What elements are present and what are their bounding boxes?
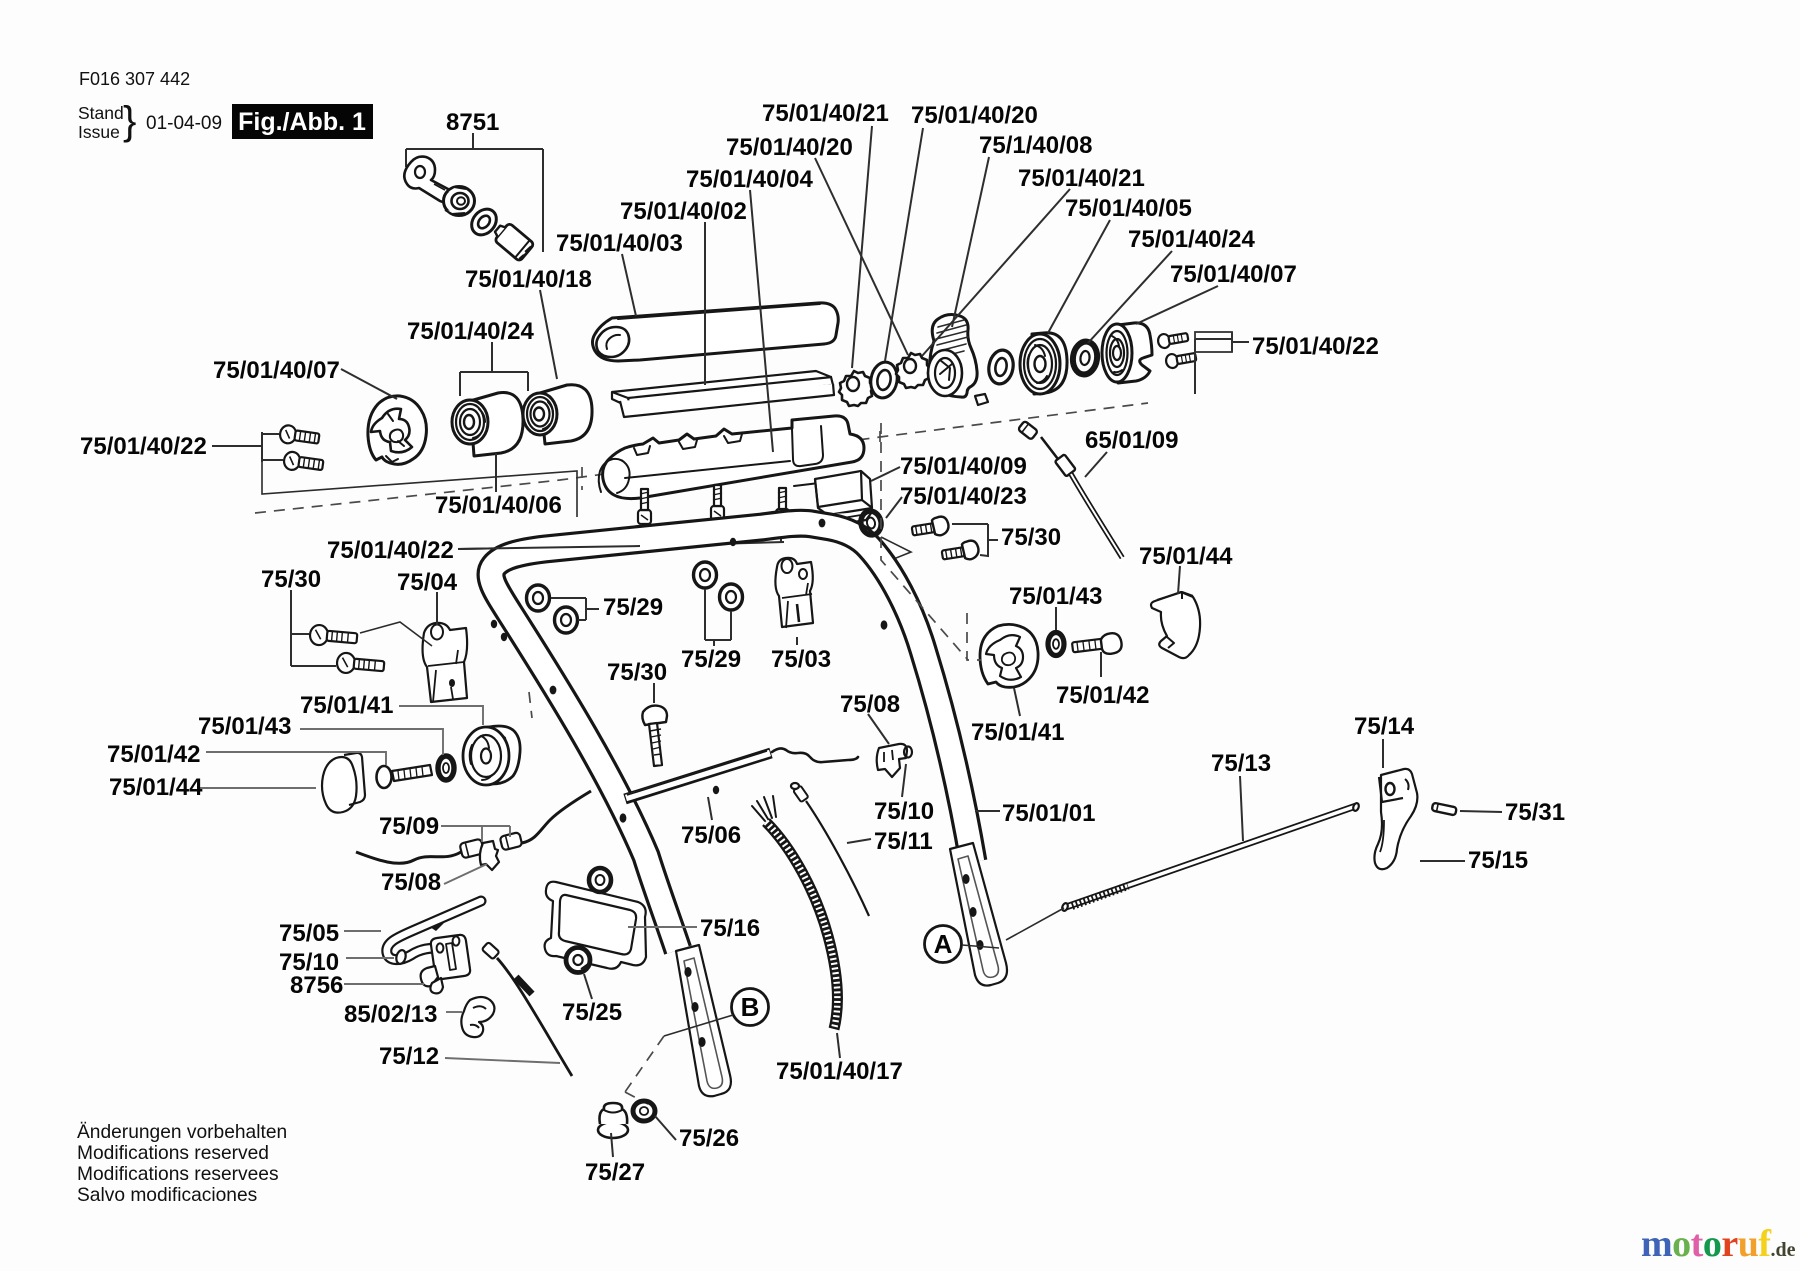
svg-text:75/01/40/20: 75/01/40/20 (911, 102, 1038, 129)
svg-text:F016 307 442: F016 307 442 (79, 69, 190, 89)
svg-text:75/03: 75/03 (771, 646, 831, 673)
svg-text:Modifications reservees: Modifications reservees (77, 1164, 279, 1185)
svg-text:75/01/40/02: 75/01/40/02 (620, 198, 747, 225)
svg-text:}: } (123, 99, 136, 143)
svg-text:75/01/40/17: 75/01/40/17 (776, 1058, 903, 1085)
svg-text:75/14: 75/14 (1354, 713, 1415, 740)
svg-text:75/01/01: 75/01/01 (1002, 800, 1095, 827)
svg-text:75/01/40/22: 75/01/40/22 (1252, 333, 1379, 360)
svg-text:75/12: 75/12 (379, 1043, 439, 1070)
svg-text:75/27: 75/27 (585, 1159, 645, 1186)
svg-text:75/01/40/22: 75/01/40/22 (327, 537, 454, 564)
svg-text:75/01/43: 75/01/43 (198, 713, 291, 740)
svg-text:75/05: 75/05 (279, 920, 339, 947)
svg-text:75/01/40/21: 75/01/40/21 (762, 100, 889, 127)
svg-text:75/01/40/06: 75/01/40/06 (435, 492, 562, 519)
svg-text:75/01/44: 75/01/44 (109, 774, 203, 801)
svg-text:75/13: 75/13 (1211, 750, 1271, 777)
svg-text:75/26: 75/26 (679, 1125, 739, 1152)
svg-text:A: A (934, 929, 953, 959)
svg-text:8756: 8756 (290, 972, 343, 999)
svg-text:75/01/41: 75/01/41 (300, 692, 393, 719)
svg-text:75/16: 75/16 (700, 915, 760, 942)
svg-text:75/31: 75/31 (1505, 799, 1565, 826)
svg-text:75/10: 75/10 (874, 798, 934, 825)
svg-text:75/01/40/20: 75/01/40/20 (726, 134, 853, 161)
svg-text:75/08: 75/08 (840, 691, 900, 718)
svg-text:75/25: 75/25 (562, 999, 622, 1026)
svg-text:65/01/09: 65/01/09 (1085, 427, 1178, 454)
svg-text:75/30: 75/30 (607, 659, 667, 686)
svg-text:75/08: 75/08 (381, 869, 441, 896)
svg-text:75/04: 75/04 (397, 569, 458, 596)
svg-text:75/01/41: 75/01/41 (971, 719, 1064, 746)
svg-text:75/01/40/07: 75/01/40/07 (1170, 261, 1297, 288)
svg-text:75/29: 75/29 (681, 646, 741, 673)
svg-text:Stand: Stand (78, 103, 124, 123)
svg-text:Issue: Issue (78, 122, 120, 142)
svg-text:Salvo modificaciones: Salvo modificaciones (77, 1185, 257, 1206)
svg-text:85/02/13: 85/02/13 (344, 1001, 437, 1028)
svg-text:B: B (741, 992, 760, 1022)
svg-text:Fig./Abb. 1: Fig./Abb. 1 (238, 108, 366, 136)
svg-text:75/09: 75/09 (379, 813, 439, 840)
svg-text:75/01/40/22: 75/01/40/22 (80, 433, 207, 460)
svg-text:75/01/43: 75/01/43 (1009, 583, 1102, 610)
svg-text:75/01/40/24: 75/01/40/24 (407, 318, 534, 345)
svg-text:01-04-09: 01-04-09 (146, 113, 222, 134)
svg-text:75/30: 75/30 (1001, 524, 1061, 551)
svg-text:75/01/40/07: 75/01/40/07 (213, 357, 340, 384)
svg-text:75/01/40/04: 75/01/40/04 (686, 166, 813, 193)
svg-text:75/29: 75/29 (603, 594, 663, 621)
svg-text:75/01/40/23: 75/01/40/23 (900, 483, 1027, 510)
svg-text:75/01/40/24: 75/01/40/24 (1128, 226, 1255, 253)
svg-text:75/01/42: 75/01/42 (1056, 682, 1149, 709)
svg-text:Modifications reserved: Modifications reserved (77, 1143, 269, 1164)
svg-text:75/1/40/08: 75/1/40/08 (979, 132, 1092, 159)
svg-text:75/01/40/21: 75/01/40/21 (1018, 165, 1145, 192)
svg-text:75/01/40/18: 75/01/40/18 (465, 266, 592, 293)
svg-text:75/06: 75/06 (681, 822, 741, 849)
svg-text:75/11: 75/11 (874, 828, 933, 855)
svg-text:75/01/40/03: 75/01/40/03 (556, 230, 683, 257)
svg-text:75/01/40/09: 75/01/40/09 (900, 453, 1027, 480)
svg-text:75/01/44: 75/01/44 (1139, 543, 1233, 570)
svg-text:75/30: 75/30 (261, 566, 321, 593)
svg-text:Änderungen vorbehalten: Änderungen vorbehalten (77, 1122, 287, 1143)
svg-text:8751: 8751 (446, 109, 499, 136)
svg-text:75/01/40/05: 75/01/40/05 (1065, 195, 1192, 222)
svg-text:75/01/42: 75/01/42 (107, 741, 200, 768)
svg-text:75/15: 75/15 (1468, 847, 1528, 874)
